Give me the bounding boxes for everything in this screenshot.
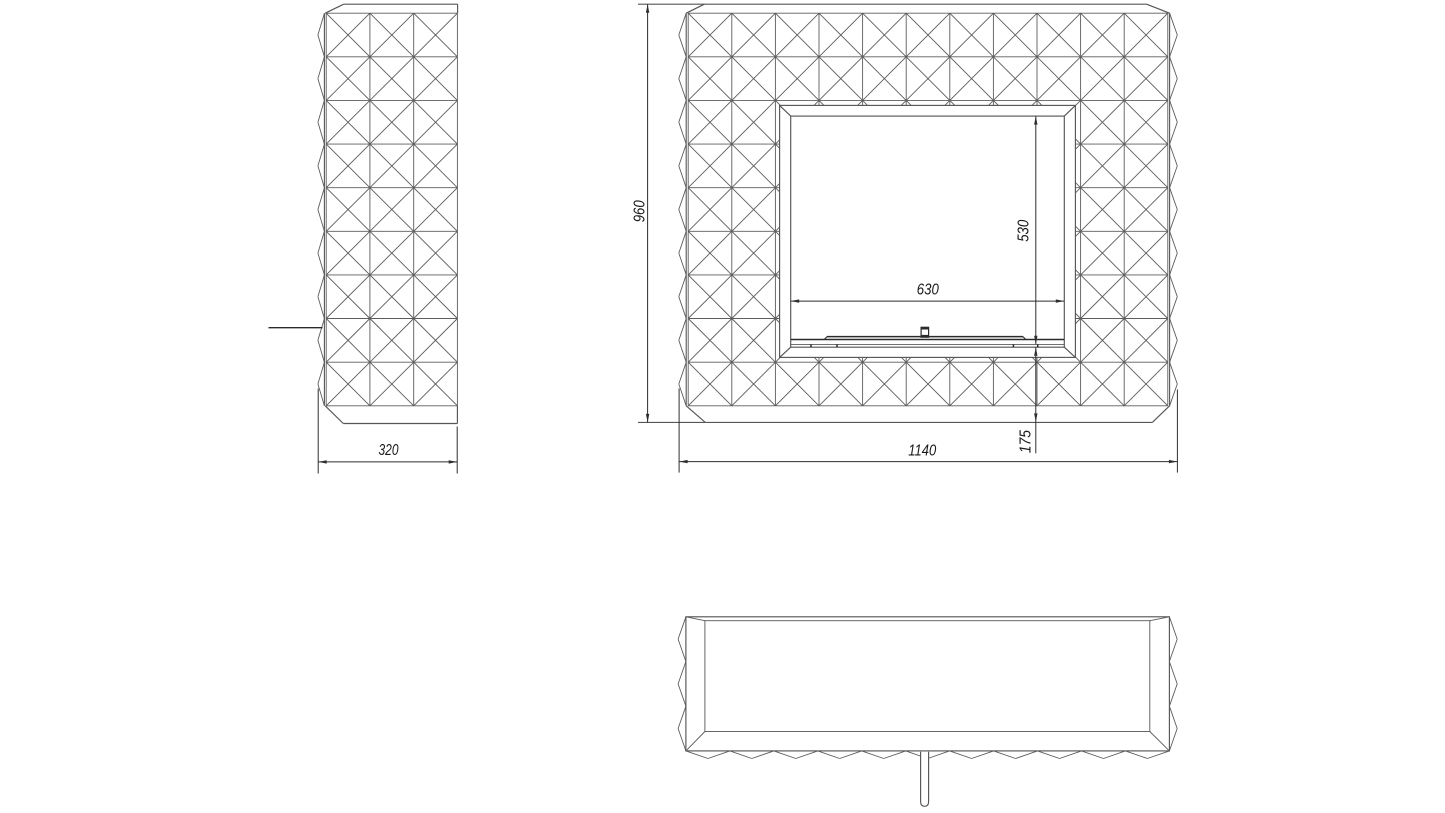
svg-text:530: 530 (1016, 220, 1033, 242)
svg-text:320: 320 (379, 442, 399, 459)
svg-text:630: 630 (917, 282, 939, 299)
svg-text:175: 175 (1018, 430, 1035, 453)
svg-text:1140: 1140 (908, 443, 936, 460)
svg-text:960: 960 (632, 200, 649, 222)
